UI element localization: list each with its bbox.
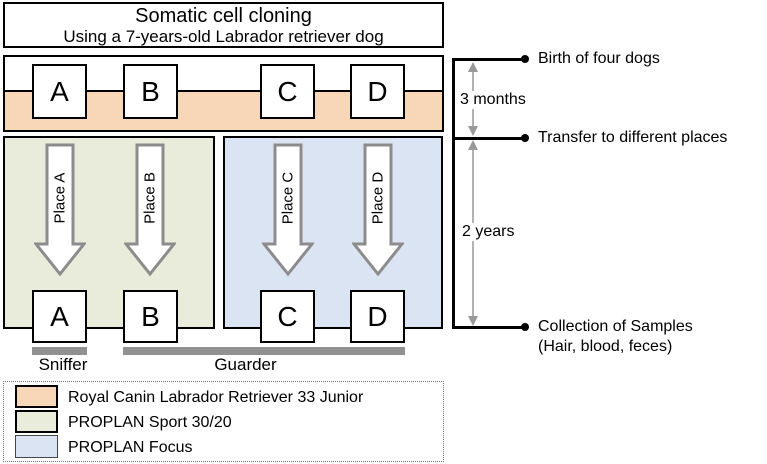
dog-box-a-birth: A: [32, 64, 87, 119]
timeline-event-collection: Collection of Samples (Hair, blood, fece…: [538, 317, 693, 357]
timeline-event-collection-line2: (Hair, blood, feces): [538, 337, 693, 357]
legend-swatch-sport-food: [15, 410, 58, 433]
guarder-label: Guarder: [163, 355, 328, 375]
cloning-experiment-diagram: Somatic cell cloning Using a 7-years-old…: [0, 0, 767, 464]
legend-label: PROPLAN Sport 30/20: [68, 413, 232, 432]
figure-title: Somatic cell cloning: [135, 5, 312, 27]
figure-subtitle: Using a 7-years-old Labrador retriever d…: [63, 27, 383, 46]
place-arrow-label: Place B: [142, 172, 159, 224]
sniffer-bar: [32, 347, 87, 355]
timeline-event-transfer: Transfer to different places: [538, 128, 727, 148]
place-arrow-label: Place A: [52, 173, 69, 224]
place-arrow-b: Place B: [124, 143, 176, 277]
dog-box-a-place: A: [32, 290, 87, 343]
timeline-event-collection-line1: Collection of Samples: [538, 317, 693, 337]
place-arrow-label: Place D: [370, 172, 387, 225]
timeline-bullet: [521, 134, 529, 142]
place-arrow-a: Place A: [34, 143, 86, 277]
timeline-axis: [452, 58, 455, 329]
figure-title-box: Somatic cell cloning Using a 7-years-old…: [3, 2, 444, 48]
timeline-event-birth: Birth of four dogs: [538, 49, 660, 69]
timeline-tick: [452, 58, 524, 61]
legend-swatch-junior-food: [15, 385, 58, 408]
dog-box-d-birth: D: [350, 64, 405, 119]
duration-label-2-years: 2 years: [460, 223, 516, 241]
timeline-tick: [452, 326, 524, 329]
dog-box-b-place: B: [123, 290, 178, 343]
place-arrow-label: Place C: [280, 172, 297, 225]
legend-label: PROPLAN Focus: [68, 438, 192, 457]
guarder-panel: [223, 136, 443, 329]
place-arrow-d: Place D: [352, 143, 404, 277]
dog-box-b-birth: B: [123, 64, 178, 119]
legend-label: Royal Canin Labrador Retriever 33 Junior: [68, 388, 363, 407]
duration-label-3-months: 3 months: [458, 91, 528, 109]
sniffer-label: Sniffer: [13, 355, 113, 375]
timeline-bullet: [521, 323, 529, 331]
dog-box-c-birth: C: [260, 64, 315, 119]
dog-box-c-place: C: [260, 290, 315, 343]
place-arrow-c: Place C: [262, 143, 314, 277]
legend-swatch-focus-food: [15, 435, 58, 458]
timeline-tick: [452, 137, 524, 140]
timeline-bullet: [521, 55, 529, 63]
guarder-bar: [123, 347, 405, 355]
dog-box-d-place: D: [350, 290, 405, 343]
